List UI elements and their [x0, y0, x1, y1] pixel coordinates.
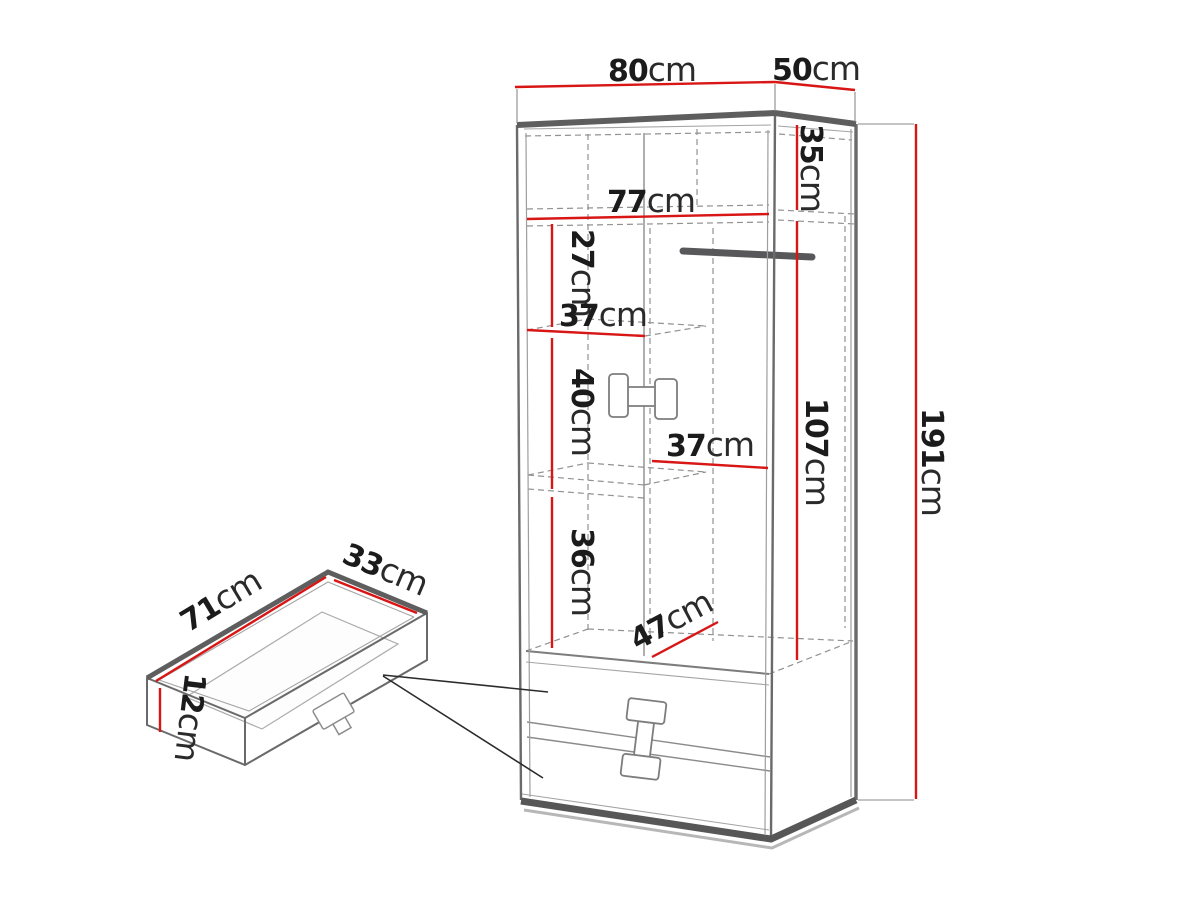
- drawer-handle-stem: [634, 721, 654, 757]
- dim-unit: cm: [798, 458, 837, 506]
- dim-unit: cm: [167, 711, 212, 764]
- dim-value: 50: [772, 53, 812, 88]
- dim-value: 40: [564, 368, 599, 408]
- dim-hanging-width-label: 37cm: [666, 425, 754, 464]
- door-handle-plate-right: [655, 379, 677, 419]
- drawer-handle-plate-top: [626, 698, 666, 724]
- dim-value: 27: [564, 229, 599, 269]
- dim-value: 37: [666, 429, 706, 464]
- dim-value: 80: [608, 54, 648, 89]
- door-handle-bar: [626, 387, 657, 406]
- dim-unit: cm: [647, 181, 695, 220]
- dim-value: 191: [914, 408, 949, 468]
- dim-depth-label: 50cm: [772, 49, 860, 88]
- dim-value: 12: [173, 671, 213, 715]
- dim-inner-width-label: 77cm: [607, 181, 695, 220]
- dim-hanging-height-label: 107cm: [798, 398, 837, 506]
- dim-unit: cm: [706, 425, 754, 464]
- pointer-line-lower-drawer: [383, 676, 543, 778]
- dim-unit: cm: [599, 295, 647, 334]
- diagram-canvas: 80cm 50cm 35cm 77cm 27cm 37cm 40cm 37cm …: [0, 0, 1200, 899]
- dim-unit: cm: [914, 468, 953, 516]
- dim-shelf-width-label: 37cm: [559, 295, 647, 334]
- door-handle-plate-left: [609, 374, 628, 417]
- dim-top-section-label: 35cm: [793, 124, 832, 212]
- dim-unit: cm: [812, 49, 860, 88]
- dim-value: 77: [607, 185, 647, 220]
- dim-unit: cm: [648, 50, 696, 89]
- dim-unit: cm: [793, 164, 832, 212]
- dim-value: 36: [564, 528, 599, 568]
- dim-width-label: 80cm: [608, 50, 696, 89]
- dim-middle-gap-label: 40cm: [564, 368, 603, 456]
- dim-value: 35: [793, 124, 828, 164]
- dim-lower-gap-label: 36cm: [564, 528, 603, 616]
- dim-unit: cm: [564, 408, 603, 456]
- dim-value: 37: [559, 299, 599, 334]
- drawer-handle-plate-bottom: [620, 754, 660, 780]
- dim-height-label: 191cm: [914, 408, 953, 516]
- wardrobe-dimension-diagram: 80cm 50cm 35cm 77cm 27cm 37cm 40cm 37cm …: [0, 0, 1200, 899]
- dim-value: 107: [798, 398, 833, 458]
- dim-unit: cm: [564, 568, 603, 616]
